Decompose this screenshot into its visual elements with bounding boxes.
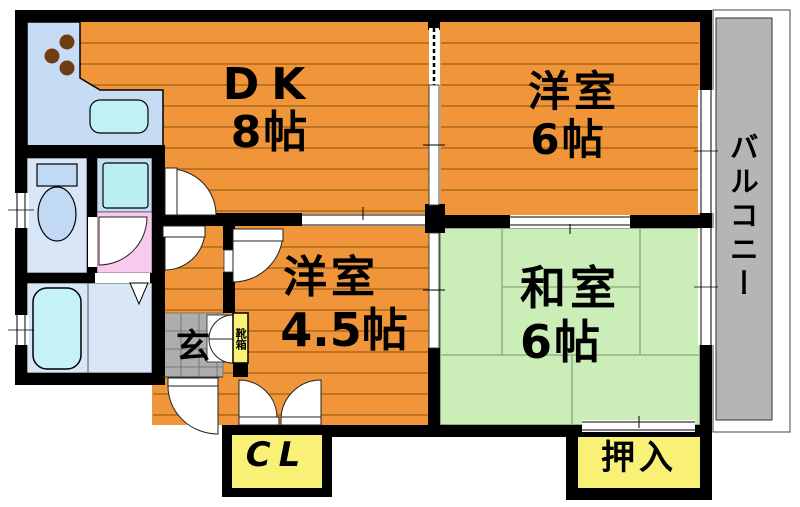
western6-floor	[440, 22, 700, 215]
shoe-cabinet-box	[233, 313, 248, 363]
balcony-area	[713, 10, 790, 432]
floorplan: DK 8帖 洋室 6帖 洋室 4.5帖 和室 6帖 バルコニー 玄 靴箱 CL …	[0, 0, 800, 507]
kitchen-sink-icon	[90, 100, 148, 133]
genkan-inner-doors	[207, 315, 233, 363]
washing-machine-icon	[103, 163, 148, 208]
toilet-tank-icon	[37, 164, 77, 186]
bathroom-door-opening	[95, 273, 150, 283]
oshiire-box	[578, 437, 700, 488]
toilet-room	[27, 158, 87, 273]
bathroom	[27, 283, 152, 373]
washroom-wall-gap	[88, 217, 97, 267]
japanese6-floor	[440, 228, 700, 425]
closet-box	[232, 435, 322, 488]
floorplan-drawing	[0, 0, 800, 507]
toilet-bowl-icon	[38, 187, 76, 241]
bathtub-icon	[33, 288, 81, 369]
